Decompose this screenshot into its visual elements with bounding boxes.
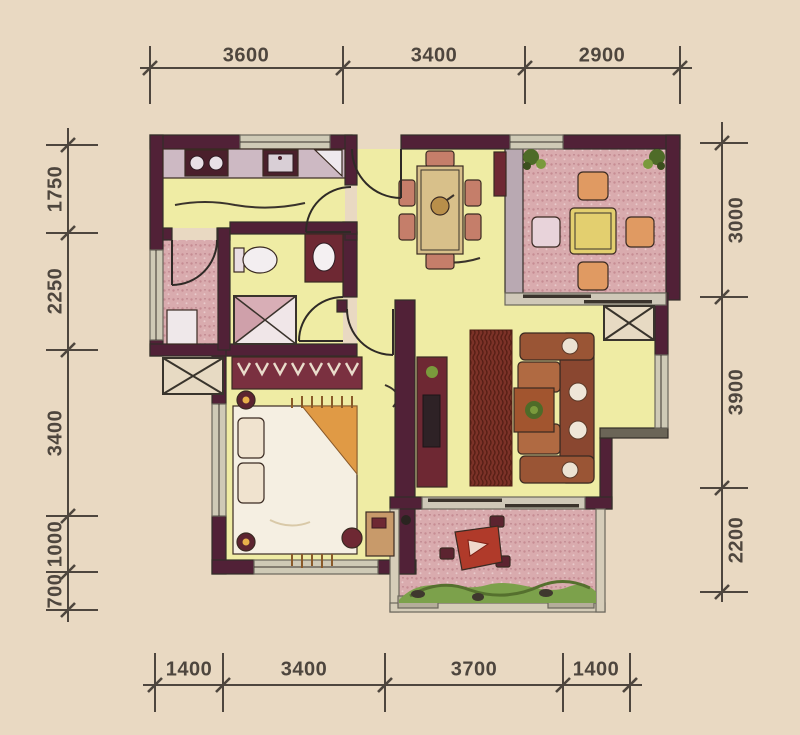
wall-living-bottom-1 (390, 497, 422, 509)
dim-left-1: 1750 (45, 166, 68, 213)
dim-top-1: 3600 (223, 45, 270, 68)
stove-icon (185, 150, 228, 176)
balcony-table-icon (570, 208, 616, 254)
floor-plan-page: 3600 3400 2900 1400 3400 3700 1400 1750 … (0, 0, 800, 735)
dim-right-3: 2200 (726, 517, 749, 564)
window-balcony-top (510, 135, 563, 149)
laundry-balcony (167, 310, 197, 344)
coffee-table-icon (514, 388, 554, 432)
dim-left-3: 3400 (45, 410, 68, 457)
plant-pot-icon (401, 515, 411, 525)
dim-top-2: 3400 (411, 45, 458, 68)
garden-rail-right (596, 509, 605, 612)
area-rug-icon (470, 330, 512, 486)
sofa-cushion-icon (569, 383, 587, 401)
wall-kitchen-right-1 (345, 135, 357, 185)
dim-top-3: 2900 (579, 45, 626, 68)
dining-chair-icon (426, 151, 454, 167)
shower-icon (234, 296, 296, 344)
wash-basin-icon (305, 234, 343, 282)
kitchen (163, 149, 345, 178)
wall-top-3 (401, 135, 510, 149)
window-laundry-left (150, 250, 163, 340)
dim-bottom-2: 3400 (281, 659, 328, 682)
dim-left-5: 700 (45, 574, 68, 609)
dim-left-4: 1000 (45, 521, 68, 568)
toilet-icon (234, 247, 277, 273)
wall-step-right (600, 428, 668, 438)
sliding-door-panel (584, 300, 652, 304)
pillow-icon (238, 463, 264, 503)
bed-fringe (292, 396, 352, 408)
washing-machine-icon (167, 310, 197, 344)
wall-kitchen-bottom-1 (163, 228, 172, 240)
window-bedroom-left (212, 404, 226, 516)
balcony-chair-icon (578, 172, 608, 200)
dining-chair-icon (426, 253, 454, 269)
window-kitchen-top (240, 135, 330, 149)
sliding-door-panel (428, 499, 502, 503)
wall-laundry-bath (218, 228, 230, 350)
sofa-lamp-icon (562, 462, 578, 478)
wall-bedroom-bottom-1 (212, 560, 254, 574)
floor-plan-drawing (0, 0, 800, 735)
sofa-lamp-icon (562, 338, 578, 354)
window-bedroom-bottom (254, 560, 378, 574)
window-living-right (655, 355, 668, 428)
wall-balcony-right (666, 135, 680, 300)
wall-bathroom-bottom (226, 344, 357, 356)
wall-left-upper (150, 135, 163, 250)
dim-right-2: 3900 (726, 369, 749, 416)
wardrobe-icon (232, 357, 362, 389)
wall-balcony-partition (505, 149, 523, 293)
ac-platform-right-icon (604, 306, 654, 340)
balcony-chair-icon (626, 217, 654, 247)
balcony-chair-icon (532, 217, 560, 247)
kitchen-sink-icon (263, 150, 298, 176)
dim-right-1: 3000 (726, 197, 749, 244)
dim-bottom-3: 3700 (451, 659, 498, 682)
wall-vestibule-header (337, 300, 347, 312)
pillow-icon (238, 418, 264, 458)
ac-platform-left-icon (163, 358, 223, 394)
sliding-door-panel (523, 295, 591, 299)
sofa-cushion-icon (569, 421, 587, 439)
wall-top-4 (563, 135, 680, 149)
balcony-chair-icon (578, 262, 608, 290)
dining-chair-icon (465, 214, 481, 240)
dim-bottom-1: 1400 (166, 659, 213, 682)
tv-cabinet-icon (417, 357, 447, 487)
dining-chair-icon (399, 214, 415, 240)
stool-icon (342, 528, 362, 548)
dim-bottom-4: 1400 (573, 659, 620, 682)
dining-chair-icon (465, 180, 481, 206)
dim-left-2: 2250 (45, 268, 68, 315)
sliding-door-panel (505, 504, 579, 508)
dining-table-icon (417, 166, 463, 254)
side-cabinet-icon (494, 152, 506, 196)
wall-living-bottom-2 (585, 497, 612, 509)
